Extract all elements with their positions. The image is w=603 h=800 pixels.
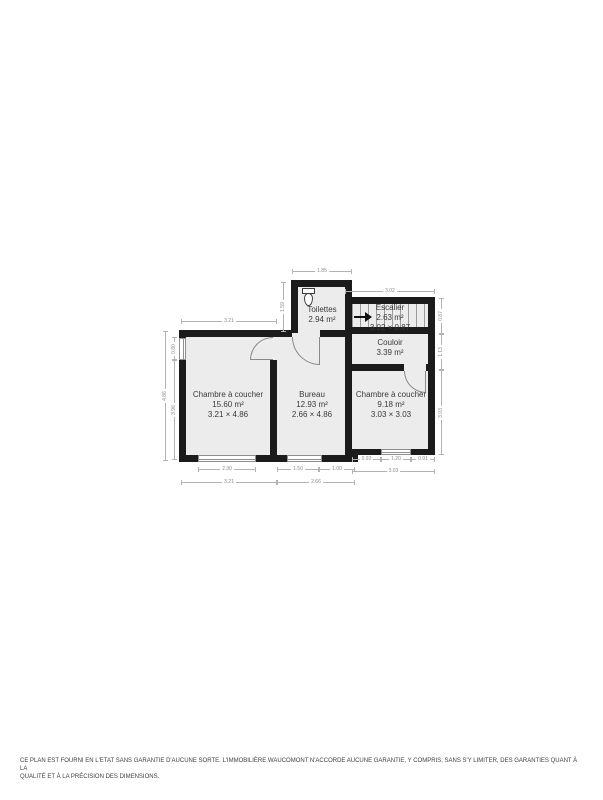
room-name: Chambre à coucher <box>193 390 263 400</box>
dimension-label: 0.92 <box>360 456 374 462</box>
room-name: Toilettes <box>307 305 336 315</box>
dimension-bottom-chambre2-c: 0.91 <box>411 459 435 460</box>
wall-main-top-right <box>320 330 352 337</box>
wall-chambre2-bottom-right <box>411 449 435 455</box>
dimension-bottom-chambre1-window: 2.30 <box>198 469 256 470</box>
dimension-bottom-chambre2-total: 3.03 <box>352 471 435 472</box>
wall-couloir-left <box>345 334 352 462</box>
wall-couloir-bottom-right <box>426 364 435 371</box>
window-chambre1-left <box>179 338 186 360</box>
room-label-chambre2: Chambre à coucher 9.18 m² 3.03 × 3.03 <box>356 390 426 420</box>
dimension-label: 3.02 <box>383 288 397 294</box>
room-name: Escalier <box>370 303 410 313</box>
wall-toilettes-right <box>345 280 352 334</box>
dimension-label: 0.87 <box>438 309 444 323</box>
dimension-label: 0.91 <box>416 456 430 462</box>
room-dims: 2.66 × 4.86 <box>292 410 332 420</box>
room-name: Chambre à coucher <box>356 390 426 400</box>
dimension-label: 1.13 <box>438 345 444 359</box>
wall-divider-lower <box>270 360 277 462</box>
room-dims: 3.02 × 0.87 <box>370 323 410 333</box>
wall-exterior-left-lower <box>179 360 186 462</box>
wall-exterior-right <box>428 297 435 455</box>
wall-toilettes-left <box>291 280 298 333</box>
dimension-bottom-chambre2-a: 0.92 <box>352 459 381 460</box>
room-dims: 3.03 × 3.03 <box>356 410 426 420</box>
window-chambre1-bottom <box>198 455 256 462</box>
dimension-left-window: 0.80 <box>174 337 175 360</box>
dimension-bottom-bureau-total: 2.66 <box>277 482 355 483</box>
room-label-bureau: Bureau 12.93 m² 2.66 × 4.86 <box>292 390 332 420</box>
dimension-top-chambre1: 3.21 <box>181 321 277 322</box>
dimension-label: 1.59 <box>280 300 286 314</box>
floor-plan: Toilettes 2.94 m² Escalier 2.63 m² 3.02 … <box>0 0 603 800</box>
dimension-label: 2.30 <box>220 466 234 472</box>
dimension-left-lower: 3.96 <box>174 360 175 460</box>
dimension-label: 3.21 <box>222 318 236 324</box>
dimension-label: 2.66 <box>309 479 323 485</box>
room-label-toilettes: Toilettes 2.94 m² <box>307 305 336 325</box>
room-label-chambre1: Chambre à coucher 15.60 m² 3.21 × 4.86 <box>193 390 263 420</box>
wall-chambre2-bottom-left <box>345 449 381 455</box>
room-area: 2.63 m² <box>370 313 410 323</box>
wall-toilettes-top <box>291 280 352 287</box>
dimension-label: 1.50 <box>291 466 305 472</box>
room-name: Couloir <box>376 338 403 348</box>
stair-direction-arrow <box>354 316 365 318</box>
dimension-left-toilettes: 1.59 <box>283 282 284 332</box>
dimension-label: 1.85 <box>315 268 329 274</box>
wall-bottom-1 <box>179 455 198 462</box>
dimension-label: 4.86 <box>162 389 168 403</box>
dimension-label: 1.20 <box>389 456 403 462</box>
dimension-right-escalier: 0.87 <box>441 298 442 334</box>
dimension-label: 3.96 <box>171 403 177 417</box>
dimension-top-toilettes: 1.85 <box>292 271 352 272</box>
dimension-label: 0.80 <box>171 342 177 356</box>
room-label-escalier: Escalier 2.63 m² 3.02 × 0.87 <box>370 303 410 333</box>
dimension-left-total: 4.86 <box>165 331 166 461</box>
room-area: 12.93 m² <box>292 400 332 410</box>
dimension-label: 3.03 <box>387 468 401 474</box>
room-area: 9.18 m² <box>356 400 426 410</box>
dimension-bottom-chambre1-total: 3.21 <box>181 482 277 483</box>
dimension-right-couloir: 1.13 <box>441 334 442 370</box>
disclaimer-line-2: QUALITÉ ET À LA PRÉCISION DES DIMENSIONS… <box>20 773 585 781</box>
dimension-bottom-bureau-b: 1.00 <box>319 469 355 470</box>
room-area: 2.94 m² <box>307 315 336 325</box>
dimension-label: 1.00 <box>330 466 344 472</box>
window-bureau-bottom <box>287 455 322 462</box>
window-chambre2-bottom <box>381 449 411 455</box>
room-dims: 3.21 × 4.86 <box>193 410 263 420</box>
dimension-right-chambre2: 3.03 <box>441 370 442 455</box>
dimension-bottom-chambre2-b: 1.20 <box>381 459 411 460</box>
wall-couloir-bottom-left <box>345 364 404 371</box>
dimension-bottom-bureau-a: 1.50 <box>277 469 319 470</box>
disclaimer: CE PLAN EST FOURNI EN L'ETAT SANS GARANT… <box>20 757 585 781</box>
room-name: Bureau <box>292 390 332 400</box>
wall-divider-upper <box>270 330 277 337</box>
disclaimer-line-1: CE PLAN EST FOURNI EN L'ETAT SANS GARANT… <box>20 757 585 773</box>
wall-exterior-left-upper <box>179 330 186 338</box>
dimension-label: 3.03 <box>438 406 444 420</box>
dimension-label: 3.21 <box>222 479 236 485</box>
room-area: 15.60 m² <box>193 400 263 410</box>
dimension-top-escalier: 3.02 <box>345 291 435 292</box>
room-area: 3.39 m² <box>376 348 403 358</box>
room-label-couloir: Couloir 3.39 m² <box>376 338 403 358</box>
